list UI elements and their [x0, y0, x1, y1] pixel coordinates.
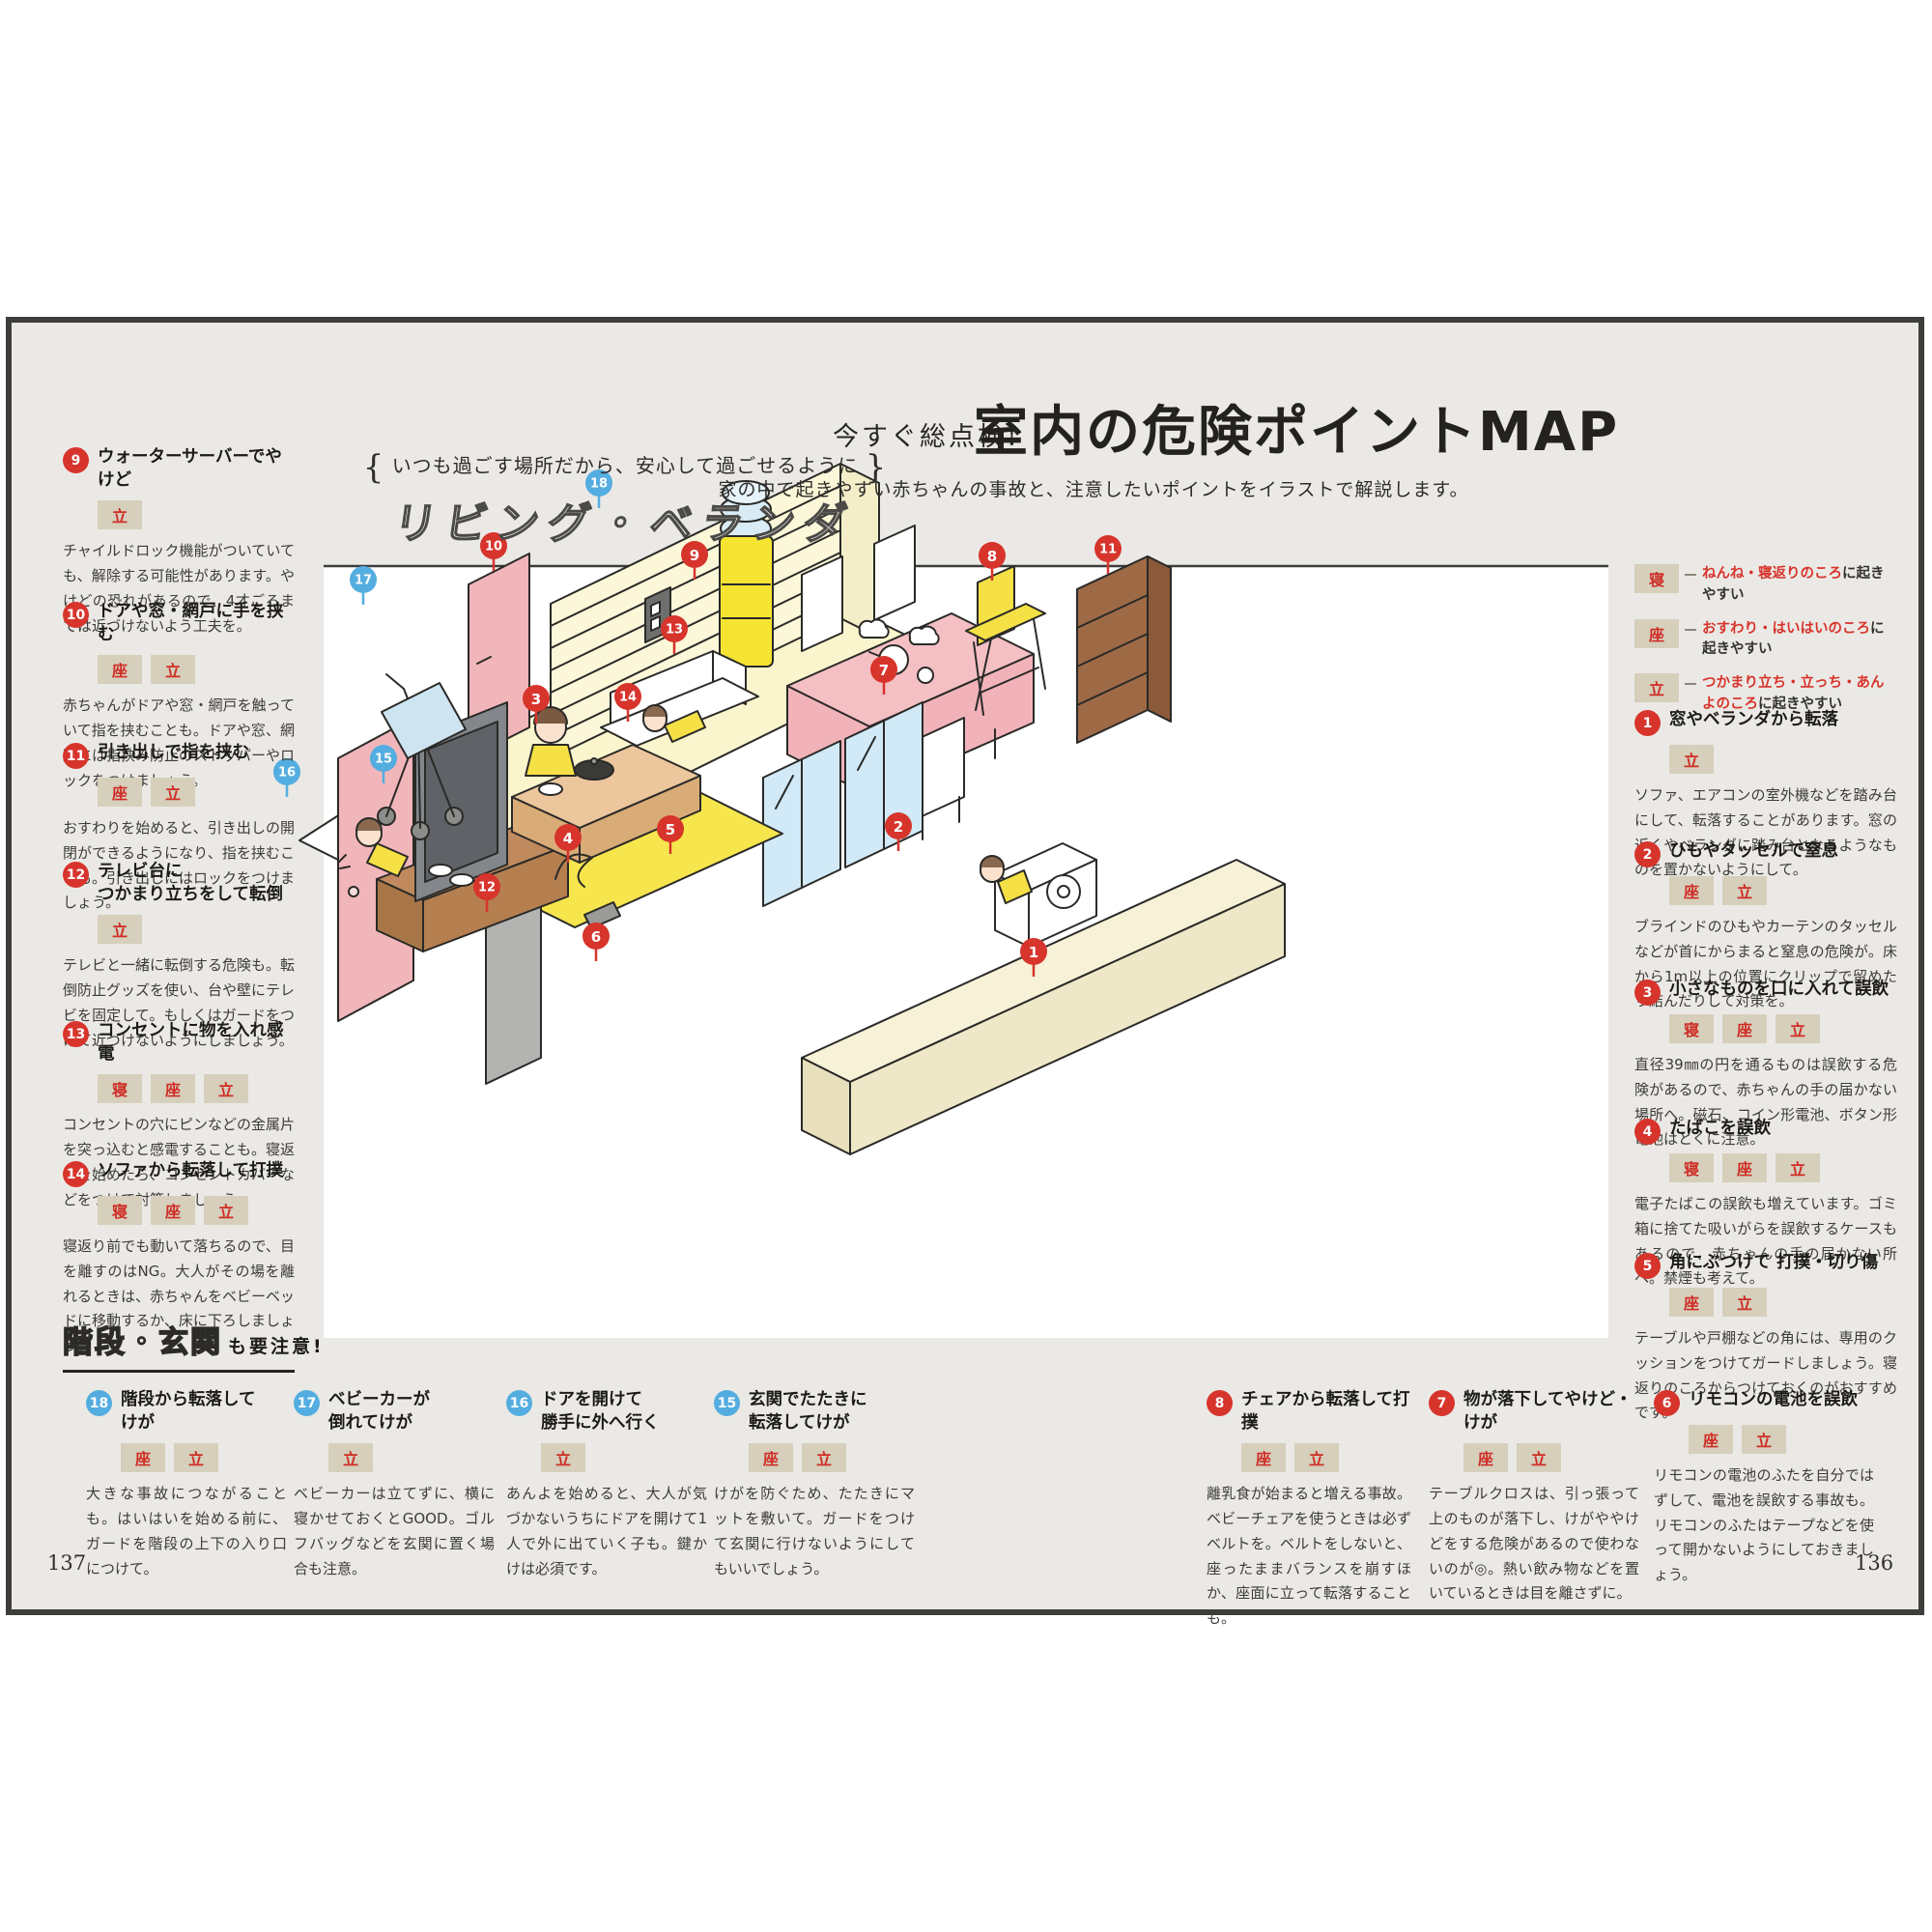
section-lead: { いつも過ごす場所だから、安心して過ごせるように }	[350, 448, 900, 487]
svg-text:17: 17	[355, 574, 372, 588]
stage-tag: 座	[98, 778, 142, 807]
svg-text:4: 4	[563, 830, 573, 847]
stage-tag: 座	[1634, 619, 1679, 648]
hazard-title: ベビーカーが 倒れてけが	[328, 1389, 430, 1435]
stage-tag: 立	[98, 915, 142, 944]
hazard-number-badge: 1	[1634, 710, 1661, 736]
hazard-number-badge: 12	[63, 862, 89, 888]
stage-tag: 立	[1776, 1153, 1820, 1182]
hazard-description: リモコンの電池のふたを自分ではずして、電池を誤飲する事故も。リモコンのふたはテー…	[1654, 1463, 1874, 1588]
hazard-title: ソファから転落して打撲	[98, 1160, 283, 1183]
hazard-number-badge: 5	[1634, 1253, 1661, 1279]
hazard-title: テレビ台に つかまり立ちをして転倒	[98, 861, 283, 906]
stage-tag: 座	[1689, 1425, 1733, 1454]
page-number-right: 136	[1855, 1551, 1893, 1575]
stage-tag: 立	[1742, 1425, 1786, 1454]
svg-text:7: 7	[879, 662, 889, 679]
page-title: 室内の危険ポイントMAP	[974, 388, 1619, 467]
hazard-description: テーブルクロスは、引っ張って上のものが落下し、けがややけどをする危険があるので使…	[1429, 1482, 1639, 1606]
stage-legend: 寝 ねんね・寝返りのころに起きやすい 座 おすわり・はいはいのころに起きやすい …	[1634, 564, 1900, 728]
svg-text:8: 8	[987, 548, 997, 565]
hazard-item-18: 18階段から転落して けが 座立 大きな事故につながることも。はいはいを始める前…	[86, 1389, 287, 1581]
stage-tag: 立	[1722, 876, 1767, 905]
stage-tag: 寝	[1669, 1153, 1714, 1182]
stage-tag: 立	[204, 1074, 248, 1103]
hazard-description: 大きな事故につながることも。はいはいを始める前に、ガードを階段の上下の入り口につ…	[86, 1482, 287, 1581]
stage-tag: 寝	[98, 1074, 142, 1103]
hazard-item-8: 8チェアから転落して打撲 座立 離乳食が始まると増える事故。ベビーチェアを使うと…	[1207, 1389, 1411, 1632]
hazard-number-badge: 10	[63, 602, 89, 628]
brace-right: }	[866, 448, 888, 487]
hazard-item-17: 17ベビーカーが 倒れてけが 立 ベビーカーは立てずに、横に寝かせておくとGOO…	[294, 1389, 495, 1581]
svg-text:15: 15	[375, 753, 392, 767]
hazard-number-badge: 15	[714, 1390, 740, 1416]
stage-tag: 座	[98, 655, 142, 684]
room-map-illustration: 123456789101112131415161718	[261, 440, 1613, 1348]
stage-tag: 座	[1241, 1443, 1286, 1472]
svg-text:2: 2	[894, 818, 903, 836]
legend-dash	[1685, 683, 1696, 685]
hazard-description: あんよを始めると、大人が気づかないうちにドアを開けて1人で外に出ていく子も。鍵か…	[506, 1482, 707, 1581]
hazard-number-badge: 3	[1634, 980, 1661, 1006]
stage-tag: 座	[151, 1196, 195, 1225]
hazard-title: 階段から転落して けが	[121, 1389, 255, 1435]
legend-row: 寝 ねんね・寝返りのころに起きやすい	[1634, 564, 1900, 607]
stage-tag: 立	[174, 1443, 218, 1472]
stage-tag: 寝	[1669, 1014, 1714, 1043]
hazard-title: ウォーターサーバーでやけど	[98, 446, 295, 492]
legend-highlight: おすわり・はいはいのころ	[1702, 621, 1870, 637]
hazard-number-badge: 9	[63, 447, 89, 473]
svg-text:11: 11	[1099, 543, 1117, 557]
hazard-title: 窓やベランダから転落	[1669, 709, 1838, 732]
stage-tag: 立	[328, 1443, 373, 1472]
hazard-title: ドアを開けて 勝手に外へ行く	[541, 1389, 660, 1435]
stage-tag: 立	[204, 1196, 248, 1225]
hazard-number-badge: 6	[1654, 1390, 1680, 1416]
book-spread-page: 123456789101112131415161718 今すぐ総点検! 室内の危…	[6, 317, 1924, 1615]
legend-row: 座 おすわり・はいはいのころに起きやすい	[1634, 619, 1900, 662]
stage-tag: 立	[98, 500, 142, 529]
hazard-number-badge: 14	[63, 1161, 89, 1187]
bookshelf	[1077, 556, 1171, 743]
svg-text:1: 1	[1029, 944, 1038, 961]
hazard-item-6: 6リモコンの電池を誤飲 座立 リモコンの電池のふたを自分ではずして、電池を誤飲す…	[1654, 1389, 1874, 1588]
stage-tag: 立	[151, 778, 195, 807]
stairs-genkan-notice: 階段・玄関も要注意!	[63, 1318, 295, 1373]
hazard-number-badge: 17	[294, 1390, 320, 1416]
hazard-description: 離乳食が始まると増える事故。ベビーチェアを使うときは必ずベルトを。ベルトをしない…	[1207, 1482, 1411, 1632]
notice-rest-text: も要注意!	[228, 1336, 325, 1357]
page-number-left: 137	[47, 1551, 86, 1575]
section-lead-text: いつも過ごす場所だから、安心して過ごせるように	[392, 454, 859, 477]
hazard-title: ドアや窓・網戸に手を挟む	[98, 601, 295, 646]
notice-outline-text: 階段・玄関	[63, 1325, 222, 1360]
hazard-title: 玄関でたたきに 転落してけが	[749, 1389, 867, 1435]
hazard-number-badge: 7	[1429, 1390, 1455, 1416]
hazard-description: ベビーカーは立てずに、横に寝かせておくとGOOD。ゴルフバッグなどを玄関に置く場…	[294, 1482, 495, 1581]
stage-tag: 座	[1669, 1288, 1714, 1317]
hazard-number-badge: 2	[1634, 841, 1661, 867]
hazard-title: コンセントに物を入れ感電	[98, 1020, 295, 1065]
section-title: リビング・ベランダ	[346, 489, 905, 551]
stage-tag: 立	[1517, 1443, 1561, 1472]
svg-text:5: 5	[666, 821, 675, 838]
hazard-number-badge: 8	[1207, 1390, 1233, 1416]
legend-dash	[1685, 574, 1696, 576]
stage-tag: 座	[151, 1074, 195, 1103]
stage-tag: 座	[1722, 1153, 1767, 1182]
hazard-title: リモコンの電池を誤飲	[1689, 1389, 1858, 1412]
hazard-title: 物が落下してやけど・けが	[1463, 1389, 1639, 1435]
stage-tag: 座	[121, 1443, 165, 1472]
stage-tag: 座	[1669, 876, 1714, 905]
stage-tag: 立	[802, 1443, 846, 1472]
svg-text:14: 14	[619, 691, 637, 705]
hazard-title: 小さなものを口に入れて誤飲	[1669, 979, 1889, 1002]
hazard-title: たばこを誤飲	[1669, 1118, 1771, 1141]
stage-tag: 立	[1294, 1443, 1339, 1472]
stage-tag: 立	[1722, 1288, 1767, 1317]
svg-text:13: 13	[666, 623, 683, 638]
svg-text:12: 12	[478, 881, 496, 895]
stage-tag: 寝	[98, 1196, 142, 1225]
hazard-title: 引き出しで指を挟む	[98, 742, 249, 765]
hazard-title: ひもやタッセルで窒息	[1669, 840, 1838, 864]
stage-tag: 立	[1776, 1014, 1820, 1043]
hazard-title: 角にぶつけて 打撲・切り傷	[1669, 1252, 1878, 1275]
hazard-number-badge: 16	[506, 1390, 532, 1416]
stage-tag: 立	[151, 655, 195, 684]
hazard-item-7: 7物が落下してやけど・けが 座立 テーブルクロスは、引っ張って上のものが落下し、…	[1429, 1389, 1639, 1606]
stage-tag: 寝	[1634, 564, 1679, 593]
hazard-description: けがを防ぐため、たたきにマットを敷いて。ガードをつけて玄関に行けないようにしても…	[714, 1482, 915, 1581]
hazard-number-badge: 18	[86, 1390, 112, 1416]
stage-tag: 座	[749, 1443, 793, 1472]
hazard-title: チェアから転落して打撲	[1241, 1389, 1411, 1435]
stage-tag: 座	[1463, 1443, 1508, 1472]
hazard-item-16: 16ドアを開けて 勝手に外へ行く 立 あんよを始めると、大人が気づかないうちにド…	[506, 1389, 707, 1581]
hazard-number-badge: 4	[1634, 1119, 1661, 1145]
svg-text:6: 6	[591, 928, 601, 946]
stage-tag: 立	[541, 1443, 585, 1472]
stage-tag: 立	[1669, 745, 1714, 774]
hazard-number-badge: 13	[63, 1021, 89, 1047]
brace-left: {	[363, 448, 385, 487]
stage-tag: 立	[1634, 673, 1679, 702]
legend-highlight: ねんね・寝返りのころ	[1702, 566, 1842, 582]
stage-tag: 座	[1722, 1014, 1767, 1043]
legend-dash	[1685, 629, 1696, 631]
svg-text:3: 3	[531, 691, 541, 708]
hazard-item-15: 15玄関でたたきに 転落してけが 座立 けがを防ぐため、たたきにマットを敷いて。…	[714, 1389, 915, 1581]
hazard-number-badge: 11	[63, 743, 89, 769]
